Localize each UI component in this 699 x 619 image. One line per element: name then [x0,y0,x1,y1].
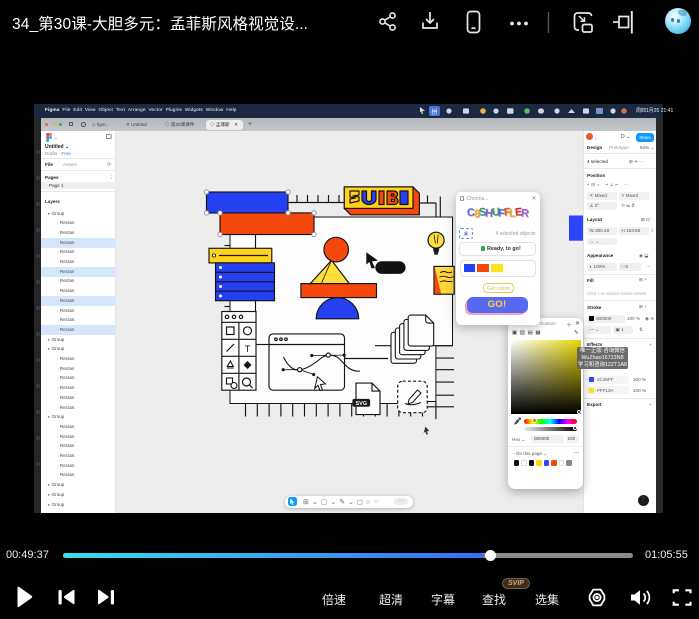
svg-text:T: T [245,344,251,354]
svg-text:SVG: SVG [355,400,367,406]
